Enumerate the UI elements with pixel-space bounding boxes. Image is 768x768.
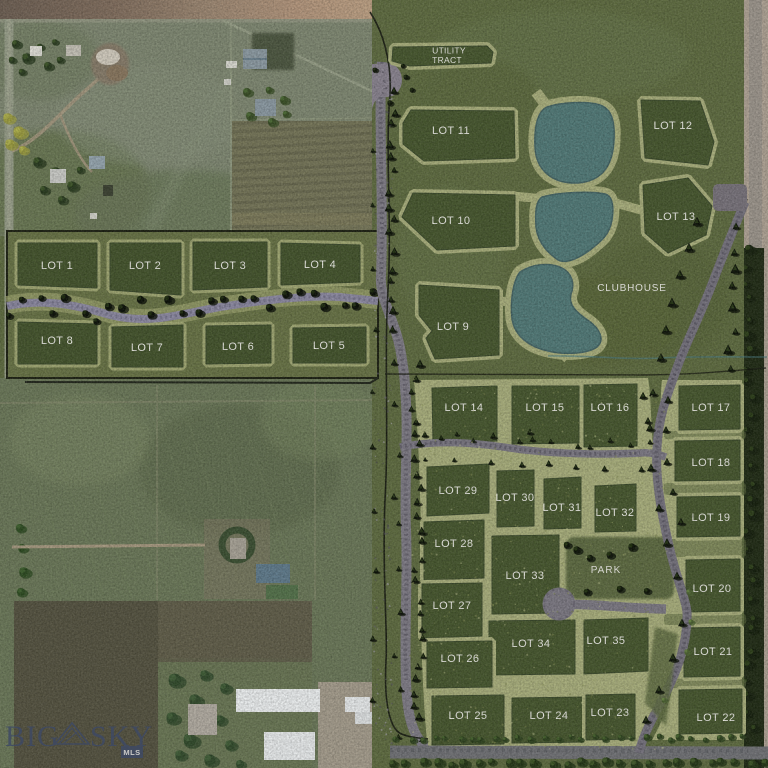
svg-text:MLS: MLS: [123, 748, 140, 757]
svg-text:BIG: BIG: [5, 720, 60, 753]
